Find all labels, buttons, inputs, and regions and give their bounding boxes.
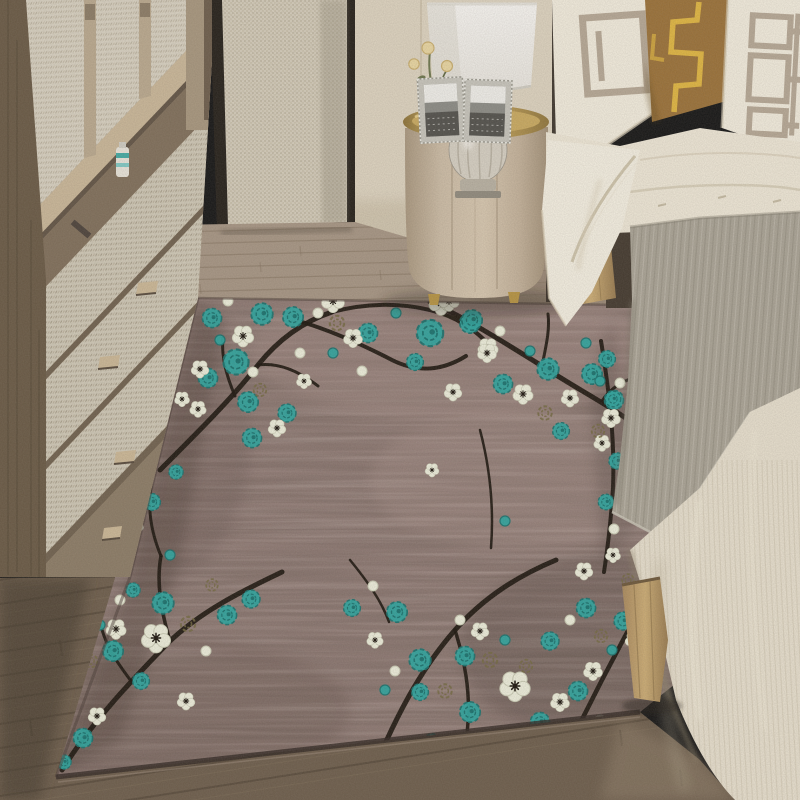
bedroom-photo <box>0 0 800 800</box>
photo-grain-light <box>0 0 800 800</box>
